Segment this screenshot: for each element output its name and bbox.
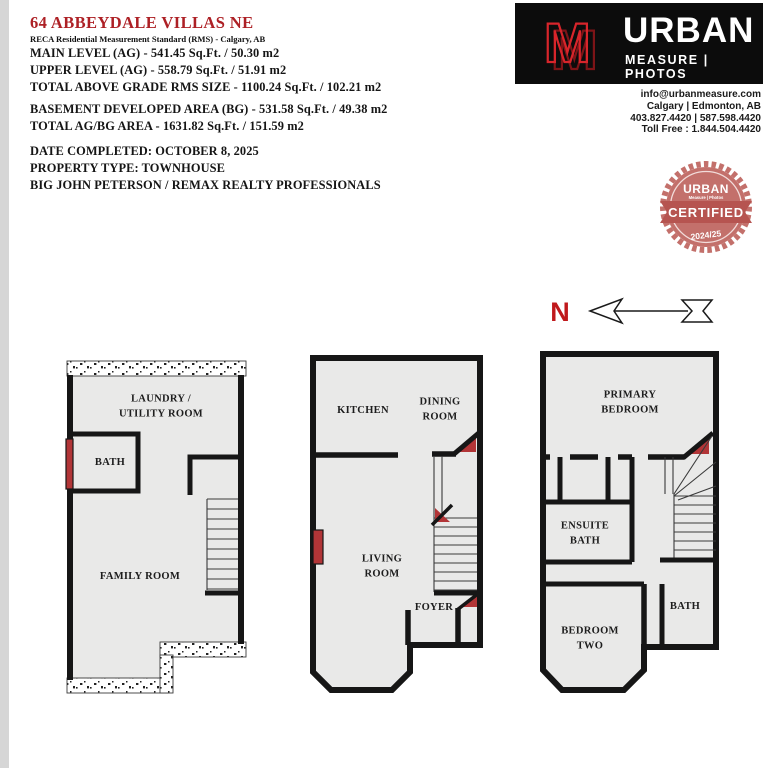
- main-level-floorplan: KITCHEN DINING ROOM LIVING ROOM FOYER: [306, 350, 488, 702]
- fireplace-marker: [313, 530, 323, 564]
- page-edge-shadow: [0, 0, 9, 768]
- brand-tagline: MEASURE | PHOTOS: [625, 53, 763, 81]
- date-completed: DATE COMPLETED: OCTOBER 8, 2025: [30, 143, 381, 160]
- urban-measure-m-icon: M M: [527, 5, 627, 83]
- main-level-area: MAIN LEVEL (AG) - 541.45 Sq.Ft. / 50.30 …: [30, 45, 381, 62]
- contact-cities: Calgary | Edmonton, AB: [630, 101, 761, 113]
- page-title: 64 ABBEYDALE VILLAS NE: [30, 13, 254, 33]
- room-label-kitchen: KITCHEN: [337, 404, 389, 419]
- basement-area: BASEMENT DEVELOPED AREA (BG) - 531.58 Sq…: [30, 101, 387, 118]
- room-label-bath: BATH: [95, 456, 125, 471]
- badge-label: CERTIFIED: [668, 205, 744, 220]
- basement-window-marker: [66, 439, 73, 489]
- report-meta: DATE COMPLETED: OCTOBER 8, 2025 PROPERTY…: [30, 143, 381, 194]
- room-label-family-room: FAMILY ROOM: [100, 570, 180, 585]
- contact-tollfree: Toll Free : 1.844.504.4420: [630, 124, 761, 136]
- contact-info: info@urbanmeasure.com Calgary | Edmonton…: [630, 89, 761, 136]
- total-agbg-area: TOTAL AG/BG AREA - 1631.82 Sq.Ft. / 151.…: [30, 118, 387, 135]
- basement-floorplan: LAUNDRY / UTILITY ROOM BATH FAMILY ROOM: [64, 350, 250, 696]
- contact-email: info@urbanmeasure.com: [630, 89, 761, 101]
- north-arrow: N: [540, 288, 740, 332]
- north-label: N: [550, 297, 570, 327]
- above-grade-areas: MAIN LEVEL (AG) - 541.45 Sq.Ft. / 50.30 …: [30, 45, 381, 96]
- badge-brand: URBAN: [683, 182, 729, 196]
- room-label-dining-room: DINING ROOM: [420, 396, 461, 425]
- below-grade-areas: BASEMENT DEVELOPED AREA (BG) - 531.58 Sq…: [30, 101, 387, 135]
- property-type: PROPERTY TYPE: TOWNHOUSE: [30, 160, 381, 177]
- certified-badge: URBAN Measure | Photos CERTIFIED 2024/25: [655, 160, 760, 260]
- brand-name: URBAN: [623, 11, 754, 51]
- measurement-standard-note: RECA Residential Measurement Standard (R…: [30, 34, 265, 44]
- room-label-laundry-utility: LAUNDRY / UTILITY ROOM: [119, 393, 203, 422]
- room-label-upper-bath: BATH: [670, 600, 700, 615]
- room-label-primary-bedroom: PRIMARY BEDROOM: [583, 389, 677, 418]
- upper-level-area: UPPER LEVEL (AG) - 558.79 Sq.Ft. / 51.91…: [30, 62, 381, 79]
- room-label-living-room: LIVING ROOM: [362, 553, 402, 582]
- contact-phones: 403.827.4420 | 587.598.4420: [630, 113, 761, 125]
- main-level-floorplan-drawing: [306, 350, 488, 702]
- room-label-ensuite-bath: ENSUITE BATH: [561, 520, 609, 549]
- upper-level-floorplan: PRIMARY BEDROOM ENSUITE BATH BATH BEDROO…: [536, 344, 724, 704]
- room-label-bedroom-two: BEDROOM TWO: [561, 625, 619, 654]
- floorplan-document: { "header": { "title": "64 ABBEYDALE VIL…: [0, 0, 763, 768]
- badge-brand-sub: Measure | Photos: [689, 195, 724, 200]
- brand-logo-box: M M URBAN MEASURE | PHOTOS: [515, 3, 763, 84]
- room-label-foyer: FOYER: [415, 601, 453, 616]
- total-above-grade-area: TOTAL ABOVE GRADE RMS SIZE - 1100.24 Sq.…: [30, 79, 381, 96]
- svg-text:M: M: [544, 11, 591, 74]
- agent-brokerage: BIG JOHN PETERSON / REMAX REALTY PROFESS…: [30, 177, 381, 194]
